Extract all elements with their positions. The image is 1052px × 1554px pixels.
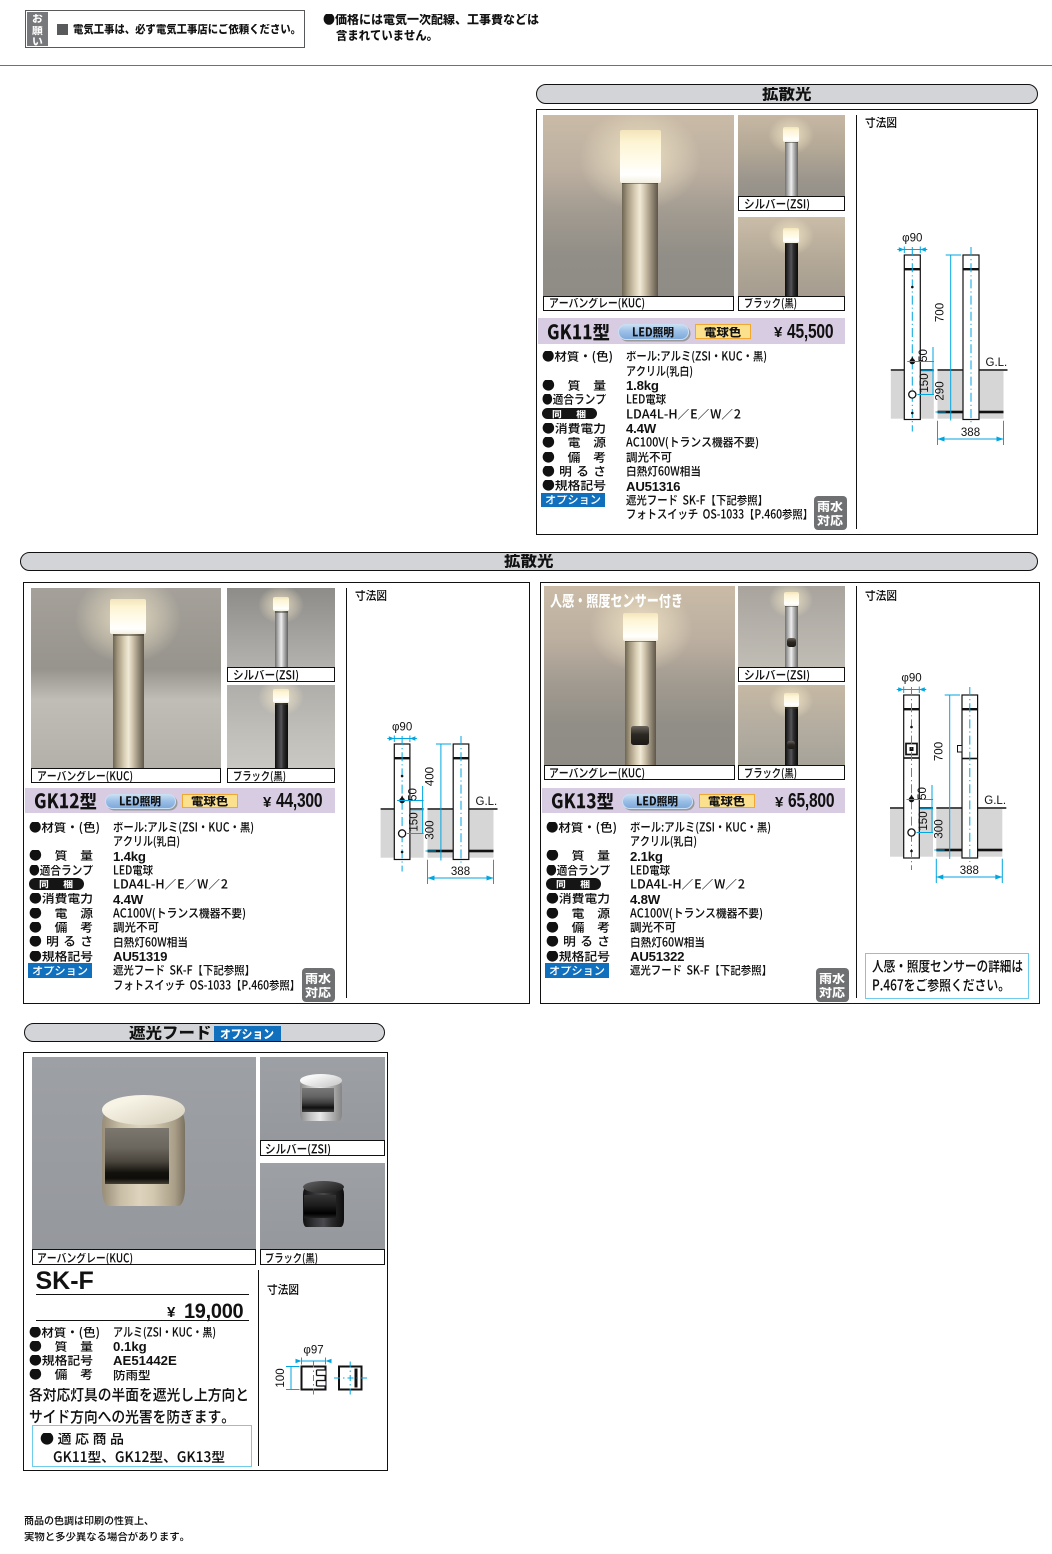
- svg-text:388: 388: [961, 427, 980, 439]
- svg-text:300: 300: [425, 820, 437, 839]
- svg-text:G.L.: G.L.: [476, 796, 498, 808]
- svg-text:φ97: φ97: [303, 1345, 323, 1357]
- svg-text:150: 150: [919, 373, 931, 392]
- svg-text:φ90: φ90: [901, 673, 921, 685]
- svg-text:φ90: φ90: [902, 233, 922, 245]
- svg-text:150: 150: [918, 811, 930, 830]
- svg-text:G.L.: G.L.: [984, 795, 1006, 807]
- svg-text:700: 700: [935, 303, 947, 322]
- svg-text:G.L.: G.L.: [986, 357, 1008, 369]
- svg-text:388: 388: [960, 865, 979, 877]
- svg-text:150: 150: [408, 812, 420, 831]
- svg-text:50: 50: [918, 349, 930, 362]
- svg-text:50: 50: [917, 787, 929, 800]
- svg-text:700: 700: [934, 742, 946, 761]
- svg-text:290: 290: [935, 381, 947, 400]
- svg-text:300: 300: [934, 819, 946, 838]
- svg-text:50: 50: [407, 788, 419, 801]
- svg-text:100: 100: [275, 1368, 287, 1387]
- svg-text:388: 388: [451, 866, 470, 878]
- svg-text:φ90: φ90: [392, 722, 412, 734]
- svg-text:400: 400: [425, 767, 437, 786]
